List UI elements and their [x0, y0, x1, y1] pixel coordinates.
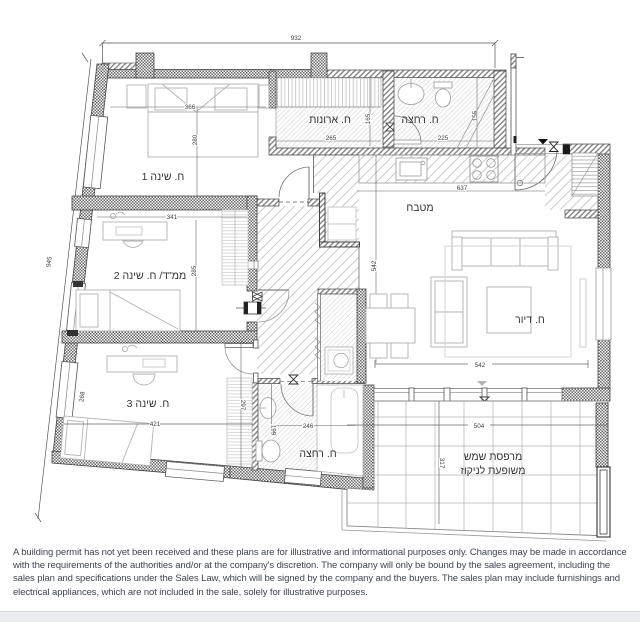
svg-text:155: 155	[472, 110, 479, 121]
svg-text:ח. שינה 3: ח. שינה 3	[127, 398, 170, 410]
svg-text:מטבח: מטבח	[406, 202, 433, 214]
svg-text:ח. שינה 1: ח. שינה 1	[142, 171, 185, 183]
svg-text:165: 165	[365, 113, 372, 124]
svg-text:297: 297	[239, 400, 246, 411]
svg-text:317: 317	[438, 458, 445, 469]
svg-text:265: 265	[326, 135, 337, 142]
svg-text:ח. דיור: ח. דיור	[515, 314, 545, 326]
svg-text:542: 542	[475, 362, 486, 369]
svg-text:מרפסת שמש: מרפסת שמש	[464, 451, 522, 463]
svg-text:542: 542	[371, 260, 378, 271]
svg-text:ח. רחצה: ח. רחצה	[401, 114, 438, 126]
svg-text:504: 504	[474, 423, 485, 430]
svg-text:225: 225	[438, 135, 449, 142]
svg-text:366: 366	[185, 104, 196, 111]
svg-text:637: 637	[457, 185, 468, 192]
svg-text:945: 945	[45, 256, 53, 268]
svg-text:ח. ארונות: ח. ארונות	[309, 114, 351, 126]
svg-text:285: 285	[191, 265, 198, 276]
svg-text:משופעת לניקוז: משופעת לניקוז	[461, 465, 526, 477]
svg-text:199: 199	[270, 425, 277, 436]
svg-text:341: 341	[167, 214, 178, 221]
svg-text:268: 268	[78, 391, 86, 403]
svg-text:421: 421	[150, 421, 161, 428]
svg-text:246: 246	[303, 423, 314, 430]
svg-text:ח. רחצה: ח. רחצה	[299, 448, 336, 460]
svg-text:932: 932	[291, 35, 302, 42]
svg-text:280: 280	[192, 134, 199, 145]
svg-text:ממ"ד/ ח. שינה 2: ממ"ד/ ח. שינה 2	[114, 270, 186, 282]
